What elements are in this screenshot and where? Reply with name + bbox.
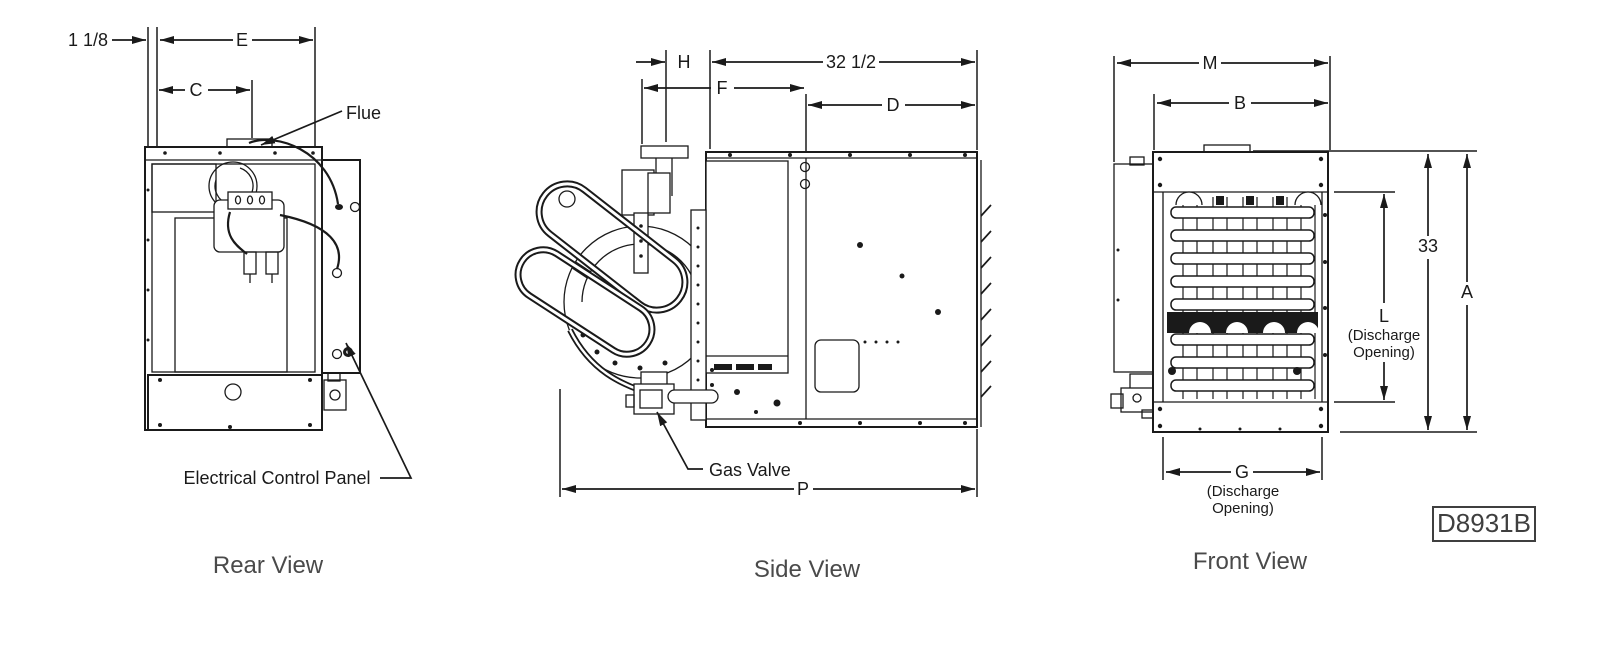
front-dim-g-note2: Opening) xyxy=(1212,500,1274,517)
side-dim-h-label: H xyxy=(678,52,691,72)
technical-drawing-page: 1 1/8 E C Flue Electrical Control Panel … xyxy=(0,0,1598,666)
rear-dim-offset-label: 1 1/8 xyxy=(68,30,108,50)
side-view-drawing xyxy=(508,146,991,427)
drawing-number-badge: D8931B xyxy=(1433,507,1535,541)
front-dim-a-label: A xyxy=(1461,282,1473,302)
flue-label: Flue xyxy=(346,103,381,123)
front-dim-l-label: L xyxy=(1379,306,1389,326)
front-view-drawing xyxy=(1111,145,1328,432)
side-view-caption: Side View xyxy=(754,556,861,583)
drawing-number: D8931B xyxy=(1437,508,1531,538)
side-view: H 32 1/2 F D Gas Valve P Side View xyxy=(508,50,991,583)
front-dim-height-label: 33 xyxy=(1418,236,1438,256)
front-dim-g-label: G xyxy=(1235,462,1249,482)
side-dim-width-label: 32 1/2 xyxy=(826,52,876,72)
front-dim-l-note1: (Discharge xyxy=(1348,327,1421,344)
gas-valve-label: Gas Valve xyxy=(709,460,791,480)
rear-view-caption: Rear View xyxy=(213,552,324,579)
electrical-panel-label: Electrical Control Panel xyxy=(183,468,370,488)
front-dim-l-note2: Opening) xyxy=(1353,344,1415,361)
side-dim-f-label: F xyxy=(717,78,728,98)
front-view: M B 33 A L (Discharge Opening) G (Discha… xyxy=(1111,53,1477,575)
side-dim-d-label: D xyxy=(887,95,900,115)
side-dim-p-label: P xyxy=(797,479,809,499)
front-dim-b-label: B xyxy=(1234,93,1246,113)
heater-dimension-drawing: 1 1/8 E C Flue Electrical Control Panel … xyxy=(0,0,1598,666)
front-view-caption: Front View xyxy=(1193,548,1308,575)
rear-dim-c-label: C xyxy=(190,80,203,100)
rear-dim-e-label: E xyxy=(236,30,248,50)
front-dim-m-label: M xyxy=(1203,53,1218,73)
front-dim-g-note1: (Discharge xyxy=(1207,483,1280,500)
rear-view-drawing xyxy=(145,139,360,430)
rear-view: 1 1/8 E C Flue Electrical Control Panel … xyxy=(68,27,411,579)
